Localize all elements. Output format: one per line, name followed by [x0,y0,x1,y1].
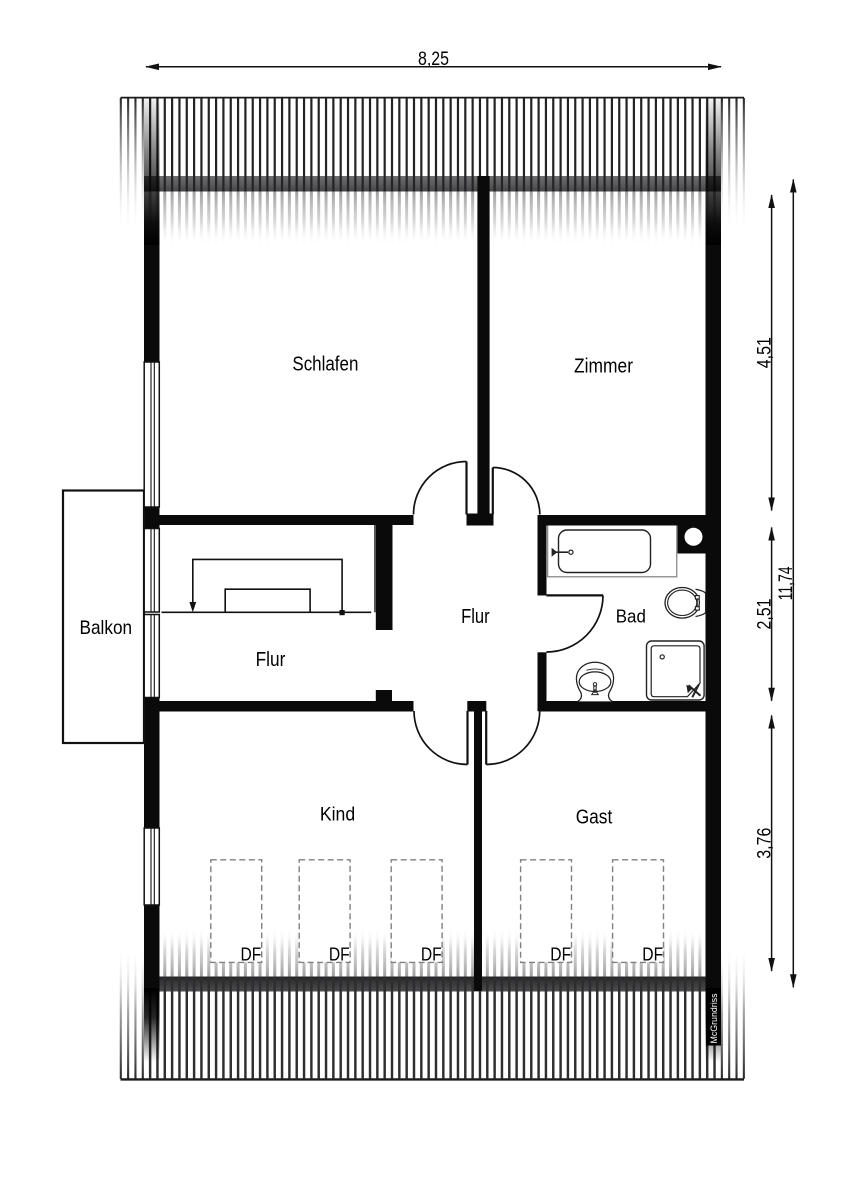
svg-text:Flur: Flur [256,649,286,671]
svg-text:11,74: 11,74 [775,566,797,600]
svg-text:Zimmer: Zimmer [574,355,633,377]
svg-text:Flur: Flur [461,606,490,628]
svg-text:DF: DF [642,944,663,964]
svg-text:Balkon: Balkon [80,617,133,639]
svg-text:Bad: Bad [616,606,646,626]
svg-text:McGrundriss: McGrundriss [709,993,719,1043]
svg-text:Kind: Kind [320,804,355,826]
svg-text:8,25: 8,25 [418,48,449,70]
svg-text:4,51: 4,51 [754,337,776,368]
svg-text:3,76: 3,76 [754,828,776,859]
svg-text:2,51: 2,51 [754,599,776,630]
svg-text:DF: DF [329,944,350,964]
svg-text:DF: DF [421,944,442,964]
svg-text:DF: DF [550,944,571,964]
svg-text:DF: DF [241,944,262,964]
svg-text:Gast: Gast [576,807,613,829]
svg-text:Schlafen: Schlafen [292,354,358,376]
